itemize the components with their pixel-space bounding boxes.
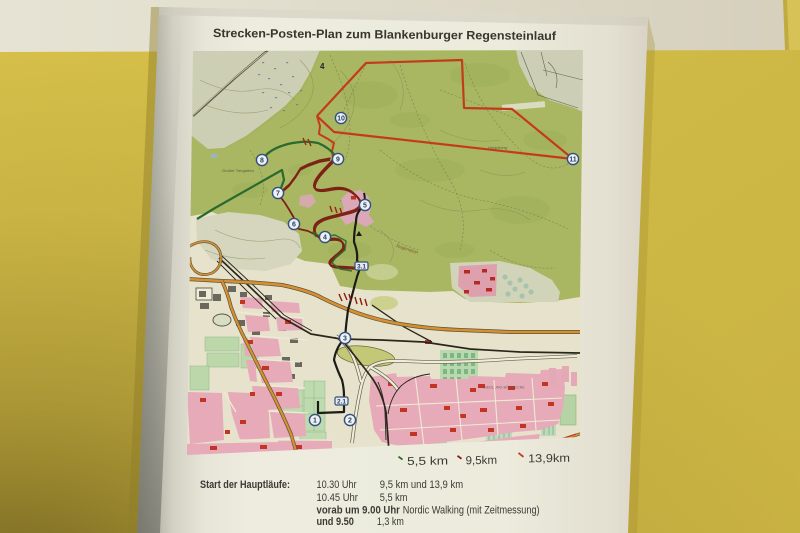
- svg-text:11: 11: [569, 157, 577, 164]
- svg-text:13,9km: 13,9km: [528, 453, 570, 466]
- svg-text:und 9.50: und 9.50: [317, 516, 354, 528]
- svg-text:2: 2: [348, 418, 352, 425]
- svg-text:1: 1: [313, 418, 317, 425]
- svg-text:6: 6: [292, 222, 296, 229]
- svg-text:4: 4: [320, 62, 325, 71]
- svg-text:5: 5: [363, 203, 367, 210]
- svg-text:3: 3: [343, 336, 347, 343]
- svg-text:4: 4: [323, 235, 327, 242]
- svg-text:10: 10: [337, 116, 345, 123]
- svg-text:Großer Tiergarten: Großer Tiergarten: [222, 168, 254, 173]
- svg-text:Nordic Walking (mit Zeitmessun: Nordic Walking (mit Zeitmessung): [403, 505, 540, 517]
- svg-text:10.45 Uhr: 10.45 Uhr: [317, 492, 359, 504]
- svg-text:7: 7: [276, 191, 280, 198]
- svg-text:9: 9: [336, 157, 340, 164]
- svg-text:9,5 km und 13,9 km: 9,5 km und 13,9 km: [380, 479, 463, 491]
- svg-text:3.1: 3.1: [357, 264, 366, 271]
- svg-text:9,5km: 9,5km: [465, 455, 497, 467]
- svg-text:vorab um 9.00 Uhr: vorab um 9.00 Uhr: [317, 505, 401, 517]
- svg-text:Start der Hauptläufe:: Start der Hauptläufe:: [200, 479, 290, 491]
- svg-text:1,3 km: 1,3 km: [377, 516, 404, 528]
- svg-text:SIEDLUNG BÖRNECKE: SIEDLUNG BÖRNECKE: [483, 386, 525, 390]
- svg-text:2.1: 2.1: [337, 399, 346, 406]
- svg-text:10.30 Uhr: 10.30 Uhr: [317, 479, 357, 491]
- svg-text:8: 8: [260, 158, 264, 165]
- svg-text:5,5 km: 5,5 km: [380, 492, 408, 504]
- svg-text:5,5 km: 5,5 km: [407, 455, 448, 468]
